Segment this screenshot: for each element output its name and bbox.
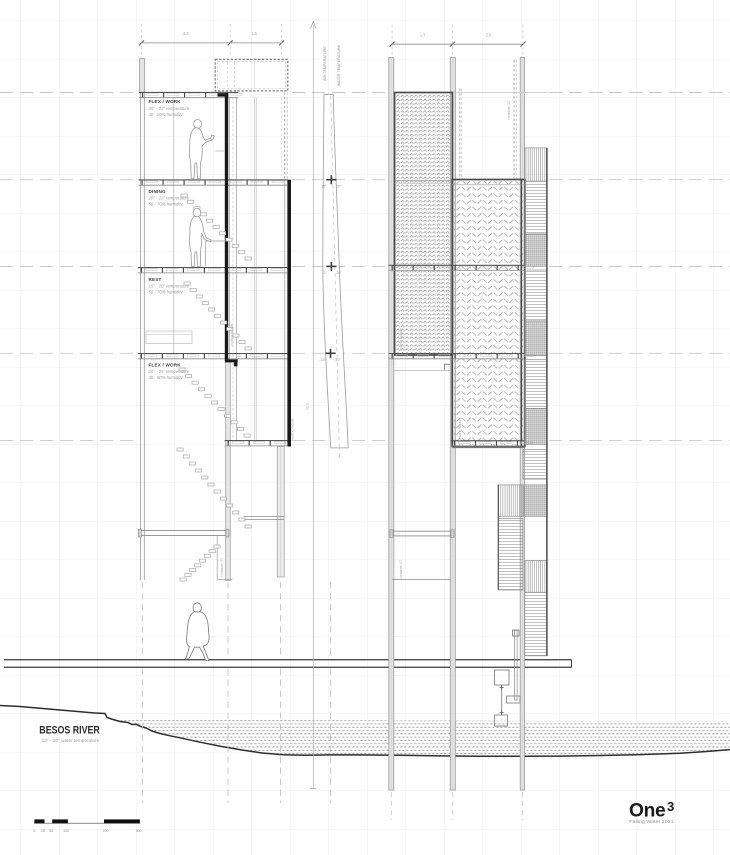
svg-text:container 07: container 07 (399, 560, 403, 579)
svg-text:cooling facade: cooling facade (230, 323, 234, 346)
svg-text:200: 200 (103, 829, 109, 833)
svg-text:22.0: 22.0 (306, 403, 310, 410)
svg-text:Falling Water 2021: Falling Water 2021 (629, 819, 674, 824)
svg-text:2.5: 2.5 (183, 31, 189, 36)
svg-text:FLEX / WORK: FLEX / WORK (149, 99, 182, 104)
svg-text:1.5: 1.5 (251, 31, 257, 36)
svg-text:20° - 23° temperature: 20° - 23° temperature (148, 196, 190, 201)
svg-text:40 - 80% humidity: 40 - 80% humidity (149, 375, 184, 380)
svg-text:100: 100 (63, 829, 69, 833)
svg-text:FLEX / WORK: FLEX / WORK (149, 363, 182, 368)
svg-text:REST: REST (149, 277, 162, 282)
svg-text:25: 25 (41, 829, 45, 833)
svg-text:50 - 70% humidity: 50 - 70% humidity (149, 202, 184, 207)
svg-text:heating facade: heating facade (291, 418, 295, 441)
svg-text:container 07: container 07 (220, 558, 224, 577)
svg-text:50: 50 (49, 829, 53, 833)
svg-text:15°: 15° (321, 185, 327, 189)
svg-text:3: 3 (667, 799, 674, 814)
svg-text:20° - 23° temperature: 20° - 23° temperature (148, 106, 190, 111)
svg-text:WATER TEMPERATURE: WATER TEMPERATURE (337, 44, 341, 86)
svg-text:25°: 25° (336, 271, 342, 275)
svg-text:DINING: DINING (149, 189, 167, 194)
svg-text:30°: 30° (335, 358, 341, 362)
svg-text:20°: 20° (336, 185, 342, 189)
svg-text:AIR TEMPERATURE: AIR TEMPERATURE (323, 46, 327, 81)
svg-text:BESOS RIVER: BESOS RIVER (39, 725, 100, 737)
svg-text:container 02: container 02 (507, 101, 511, 120)
svg-text:20° - 25° temperature: 20° - 25° temperature (148, 369, 190, 374)
svg-text:cooling facade: cooling facade (399, 328, 403, 351)
svg-text:-15°: -15° (319, 358, 326, 362)
svg-text:40 - 60% humidity: 40 - 60% humidity (149, 112, 184, 117)
svg-text:heating facade: heating facade (458, 418, 462, 441)
svg-text:13° - 20° water temperature: 13° - 20° water temperature (42, 738, 100, 743)
svg-text:2°: 2° (323, 271, 327, 275)
svg-text:50 - 70% humidity: 50 - 70% humidity (149, 290, 184, 295)
svg-text:15° - 20° temperature: 15° - 20° temperature (149, 284, 190, 289)
svg-text:300: 300 (136, 829, 142, 833)
svg-text:2.0: 2.0 (486, 32, 492, 37)
svg-text:1.7: 1.7 (420, 32, 426, 37)
svg-text:0: 0 (33, 829, 35, 833)
